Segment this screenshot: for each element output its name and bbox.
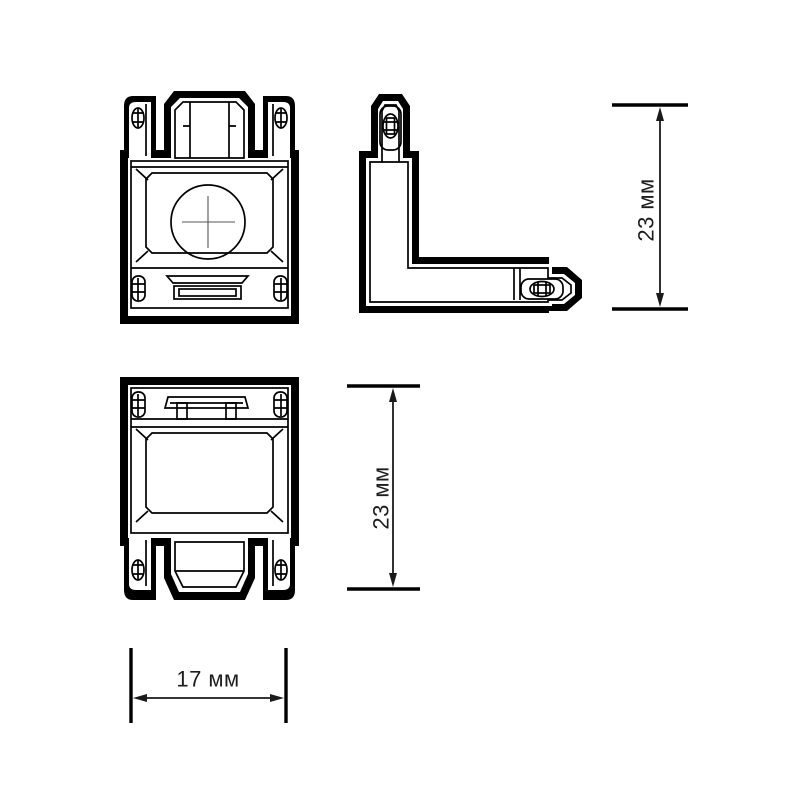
dimension-label: 23 мм [369, 466, 394, 529]
technical-drawing-page: 23 мм 23 мм 17 мм [0, 0, 800, 800]
connector-technical-drawing: 23 мм 23 мм 17 мм [0, 0, 800, 800]
dimension-body-height: 23 мм [347, 386, 420, 589]
corner-view [359, 94, 582, 313]
dimension-label: 23 мм [634, 178, 659, 241]
front-view [120, 91, 299, 324]
crosshair-icon [171, 185, 245, 259]
arrowhead-icon [656, 293, 664, 307]
arrowhead-icon [270, 694, 284, 702]
arrowhead-icon [133, 694, 147, 702]
arrowhead-icon [389, 388, 397, 402]
bottom-view [120, 377, 299, 600]
arrowhead-icon [656, 107, 664, 121]
dimension-body-width: 17 мм [131, 648, 286, 723]
dimension-corner-height: 23 мм [612, 105, 688, 309]
arrowhead-icon [389, 573, 397, 587]
dimension-label: 17 мм [176, 667, 239, 692]
